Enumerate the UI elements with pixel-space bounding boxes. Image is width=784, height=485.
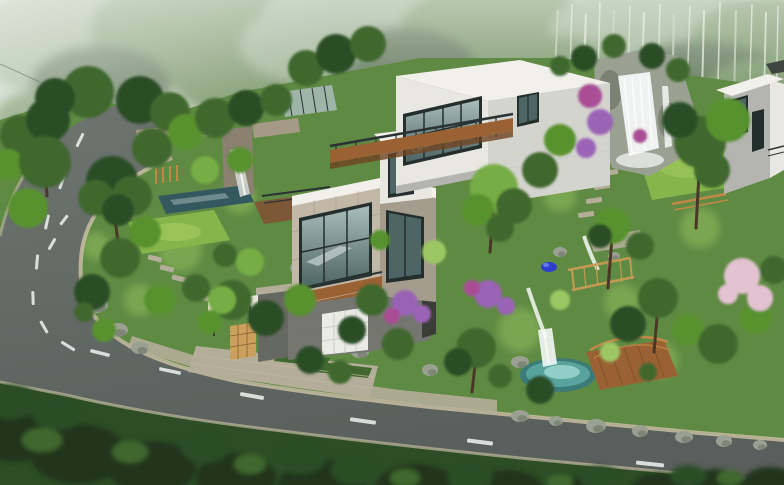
tree-canopy [639,43,665,69]
tree-canopy [626,232,654,260]
tree-canopy [550,290,570,310]
tree-canopy [8,188,48,228]
tree-canopy [102,194,134,226]
canopy-blob [32,398,84,430]
second-villa-window [752,109,764,152]
boulder-shadow [681,436,691,443]
tree-canopy [694,152,730,188]
tree-canopy [587,109,613,135]
tree-canopy [526,376,554,404]
tree-canopy [578,84,602,108]
boulder-shadow [115,329,126,337]
waterfall-mist [616,152,664,168]
canopy-blob [274,442,326,474]
tree-canopy [444,348,472,376]
canopy-blob [22,428,62,452]
tree-canopy [228,90,264,126]
tree-canopy [338,316,366,344]
tree-canopy [464,280,480,296]
tree-canopy [92,318,116,342]
tree-canopy [100,238,140,278]
tree-canopy [544,124,576,156]
canopy-blob [331,455,379,485]
tree-canopy [260,84,292,116]
boulder-shadow [558,251,566,257]
boulder-shadow [428,369,437,375]
boulder-shadow [758,444,766,450]
tree-canopy [698,324,738,364]
tree-canopy [144,284,176,316]
tree-canopy [236,248,264,276]
canopy-blob [181,433,229,463]
tree-canopy [600,342,620,362]
tree-canopy [497,297,515,315]
tree-canopy [208,286,236,314]
tree-canopy [666,58,690,82]
tree-canopy [132,128,172,168]
boulder-shadow [517,415,527,422]
tree-canopy [718,284,738,304]
tree-canopy [316,34,356,74]
canopy-blob [234,454,266,474]
tree-canopy [356,284,388,316]
boulder-shadow [638,430,647,436]
pond-highlight [544,365,580,379]
lane-marking-dash [31,291,34,305]
tree-canopy [284,284,316,316]
tree-canopy [571,45,597,71]
tree-canopy [74,302,94,322]
foliage-highlight [680,208,720,248]
blue-tarp-object [541,262,557,272]
tree-canopy [588,224,612,248]
second-villa-front [770,80,784,178]
tree-canopy [488,364,512,388]
tree-canopy [19,136,71,188]
rendering-canvas: Aerial 3D architectural rendering of a m… [0,0,784,485]
tree-canopy [198,310,222,334]
tree-canopy [191,156,219,184]
tree-canopy [35,78,75,118]
landscape-rendering: Aerial 3D architectural rendering of a m… [0,0,784,485]
tree-canopy [602,34,626,58]
tree-canopy [706,98,750,142]
tree-canopy [633,129,647,143]
tree-canopy [370,230,390,250]
tree-canopy [413,305,431,323]
canopy-blob [112,441,148,463]
tree-canopy [610,306,646,342]
tree-canopy [550,56,570,76]
tree-canopy [747,285,773,311]
tree-canopy [328,360,352,384]
boulder-shadow [137,347,147,354]
tree-canopy [350,26,386,62]
tree-canopy [248,300,284,336]
tree-canopy [296,346,324,374]
tree-canopy [662,102,698,138]
tree-canopy [129,216,161,248]
boulder-shadow [554,420,562,426]
tree-canopy [576,138,596,158]
tree-canopy [422,240,446,264]
tree-canopy [486,214,514,242]
blue-object-highlight [543,263,549,267]
boulder-shadow [593,425,604,433]
tree-canopy [182,274,210,302]
tree-canopy [227,147,253,173]
tree-canopy [213,243,237,267]
tree-canopy [522,152,558,188]
tree-canopy [638,278,678,318]
tree-canopy [382,328,414,360]
tree-canopy [639,363,657,381]
tree-canopy [384,308,400,324]
boulder-shadow [722,440,731,446]
